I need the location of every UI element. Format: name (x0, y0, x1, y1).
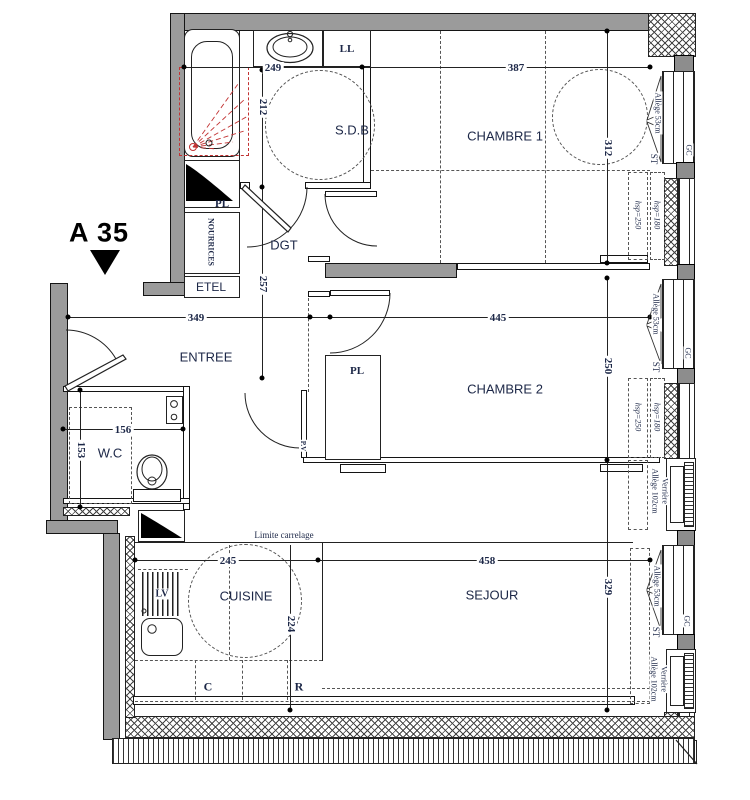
dim-sejour-depth: 329 (602, 577, 614, 598)
label-sill-chambre2: Allège 53cm (652, 292, 661, 335)
shower-spray (193, 84, 248, 149)
dim-chambre2-width: 445 (488, 312, 509, 324)
label-hsp180: hsp=180 (653, 200, 662, 231)
label-gc: GC (685, 143, 694, 156)
toilet-bowl (137, 455, 167, 489)
label-sill-verriere1: Allège 102cm (651, 467, 660, 514)
dim-cuisine-width: 245 (218, 555, 239, 567)
dim-dgt-depth: 257 (257, 274, 269, 295)
entrance-arrow-icon (90, 250, 120, 275)
door-arc-pv (245, 393, 300, 448)
label-pl-bedroom: PL (349, 365, 365, 377)
plan-linework (0, 0, 750, 800)
valve (171, 401, 178, 408)
label-hsp180: hsp=180 (653, 402, 662, 433)
label-dishwasher: LV (155, 589, 170, 600)
dim-chambre1-depth: 312 (602, 138, 614, 159)
label-tile-limit: Limite carrelage (253, 530, 314, 540)
room-label-entree: ENTREE (180, 350, 233, 365)
sink-tap (148, 625, 156, 633)
dim-wc-width: 156 (113, 424, 134, 436)
label-nourrices: NOURRICES (207, 217, 216, 267)
apartment-label: A 35 (69, 218, 129, 249)
door-arc-chambre1 (325, 194, 377, 246)
label-hob: C (203, 680, 214, 695)
sink-dot (142, 609, 146, 613)
label-verriere2: Verrière (660, 665, 669, 693)
facade-corner-diagonal (676, 740, 697, 764)
label-st: ST (651, 626, 661, 639)
wedge-symbol (186, 164, 233, 201)
room-label-chambre2: CHAMBRE 2 (467, 382, 543, 397)
room-label-cuisine: CUISINE (220, 589, 273, 604)
dim-chambre2-depth: 250 (602, 356, 614, 377)
dim-entree-width: 349 (186, 312, 207, 324)
label-st: ST (649, 153, 659, 166)
room-label-wc: W.C (98, 446, 123, 461)
label-hsp250: hsp=250 (634, 402, 643, 433)
door-leaf-sdb[interactable] (242, 185, 291, 232)
dim-wc-depth: 153 (75, 440, 87, 461)
door-arc-chambre2 (330, 293, 390, 353)
label-sill-sejour: Allège 53cm (653, 564, 662, 607)
label-pv-door: P.V (299, 440, 307, 452)
door-arc-entrance (66, 330, 116, 359)
dim-sejour-width: 458 (477, 555, 498, 567)
label-gc: GC (684, 346, 693, 359)
label-verriere1: Verrière (661, 477, 670, 505)
dim-sdb-width: 249 (263, 62, 284, 74)
label-gc: GC (683, 614, 692, 627)
valve (171, 414, 177, 420)
dim-cuisine-depth: 224 (285, 614, 297, 635)
label-fridge: R (294, 680, 305, 695)
label-hsp250: hsp=250 (634, 200, 643, 231)
label-etel: ETEL (195, 280, 227, 294)
dim-chambre1-width: 387 (506, 62, 527, 74)
dim-sdb-depth: 212 (257, 97, 269, 118)
floor-plan: A 35 S.D.B CHAMBRE 1 CHAMBRE 2 ENTREE W.… (0, 0, 750, 800)
room-label-dgt: DGT (270, 238, 297, 253)
label-sill-verriere2: Allège 102cm (650, 655, 659, 702)
label-st: ST (651, 361, 661, 374)
label-pl-bath: PL (214, 198, 230, 210)
room-label-chambre1: CHAMBRE 1 (467, 129, 543, 144)
room-label-sejour: SEJOUR (466, 588, 519, 603)
door-leaf-entrance[interactable] (65, 355, 126, 391)
label-sill-chambre1: Allège 53cm (654, 91, 663, 134)
wedge-symbol (141, 513, 182, 538)
room-label-sdb: S.D.B (335, 123, 369, 138)
label-washer: LL (339, 43, 356, 55)
